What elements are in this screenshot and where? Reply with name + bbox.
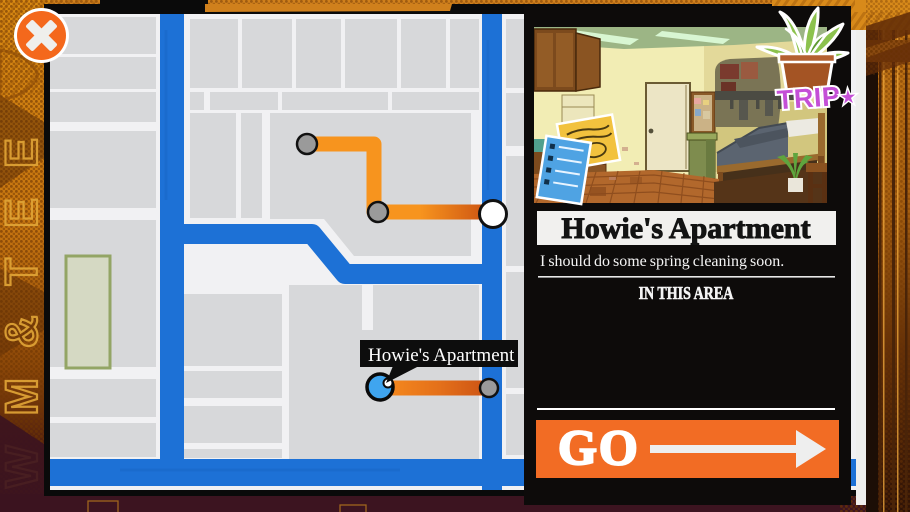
svg-text:Howie's Apartment: Howie's Apartment xyxy=(368,345,515,366)
svg-text:TRIP: TRIP xyxy=(776,81,841,115)
svg-text:IN THIS AREA: IN THIS AREA xyxy=(639,285,734,304)
svg-text:Howie's Apartment: Howie's Apartment xyxy=(561,212,810,245)
svg-text:GO: GO xyxy=(558,419,640,475)
svg-text:I should do some spring cleani: I should do some spring cleaning soon. xyxy=(540,253,784,270)
svg-text:★: ★ xyxy=(840,89,856,107)
